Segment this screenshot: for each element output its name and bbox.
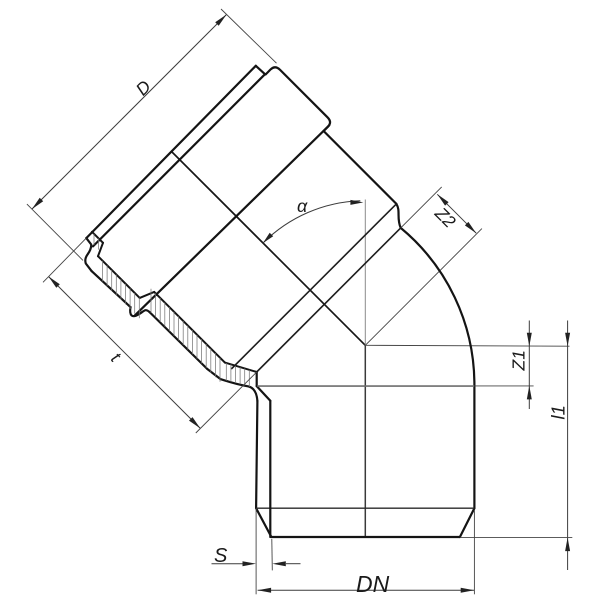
svg-text:DN: DN (356, 571, 390, 597)
svg-text:Z1: Z1 (509, 350, 529, 371)
svg-text:α: α (297, 196, 308, 216)
svg-text:l1: l1 (548, 405, 569, 419)
svg-text:S: S (214, 545, 228, 567)
